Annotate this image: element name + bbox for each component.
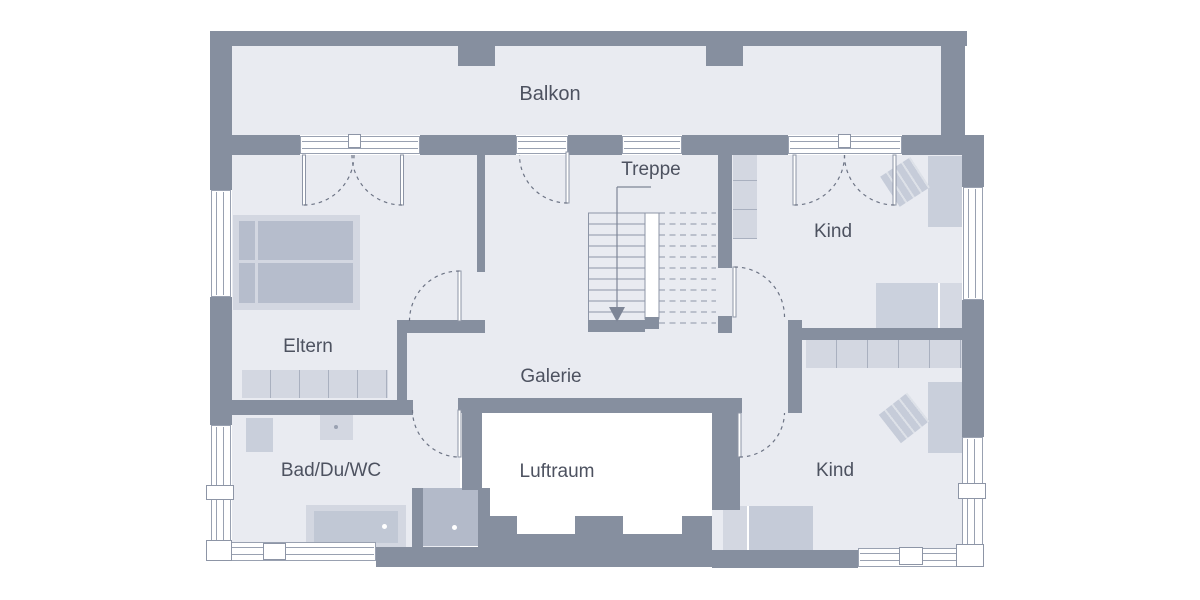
floor-plan: Balkon Treppe Kind Eltern Galerie Bad/Du… — [0, 0, 1200, 600]
room-label-treppe: Treppe — [576, 159, 726, 181]
room-label-kind-bottom: Kind — [760, 460, 910, 482]
mullion-square — [206, 485, 234, 500]
room-label-kind-top: Kind — [758, 221, 908, 243]
mullion-square — [899, 547, 923, 565]
room-label-luftraum: Luftraum — [482, 461, 632, 483]
room-label-galerie: Galerie — [476, 366, 626, 388]
mullion-square — [838, 134, 851, 148]
staircase — [588, 187, 716, 332]
room-label-balkon: Balkon — [475, 83, 625, 106]
mullion-square — [348, 134, 361, 148]
mullion-square — [958, 483, 986, 499]
door-swing-arcs — [304, 155, 895, 457]
room-label-eltern: Eltern — [233, 336, 383, 358]
corner-post-square — [956, 544, 984, 567]
door-leaves — [303, 152, 897, 457]
corner-post-square — [206, 540, 232, 561]
mullion-square — [263, 543, 286, 560]
room-label-bad: Bad/Du/WC — [246, 460, 416, 482]
stair-direction-arrow — [609, 307, 625, 322]
